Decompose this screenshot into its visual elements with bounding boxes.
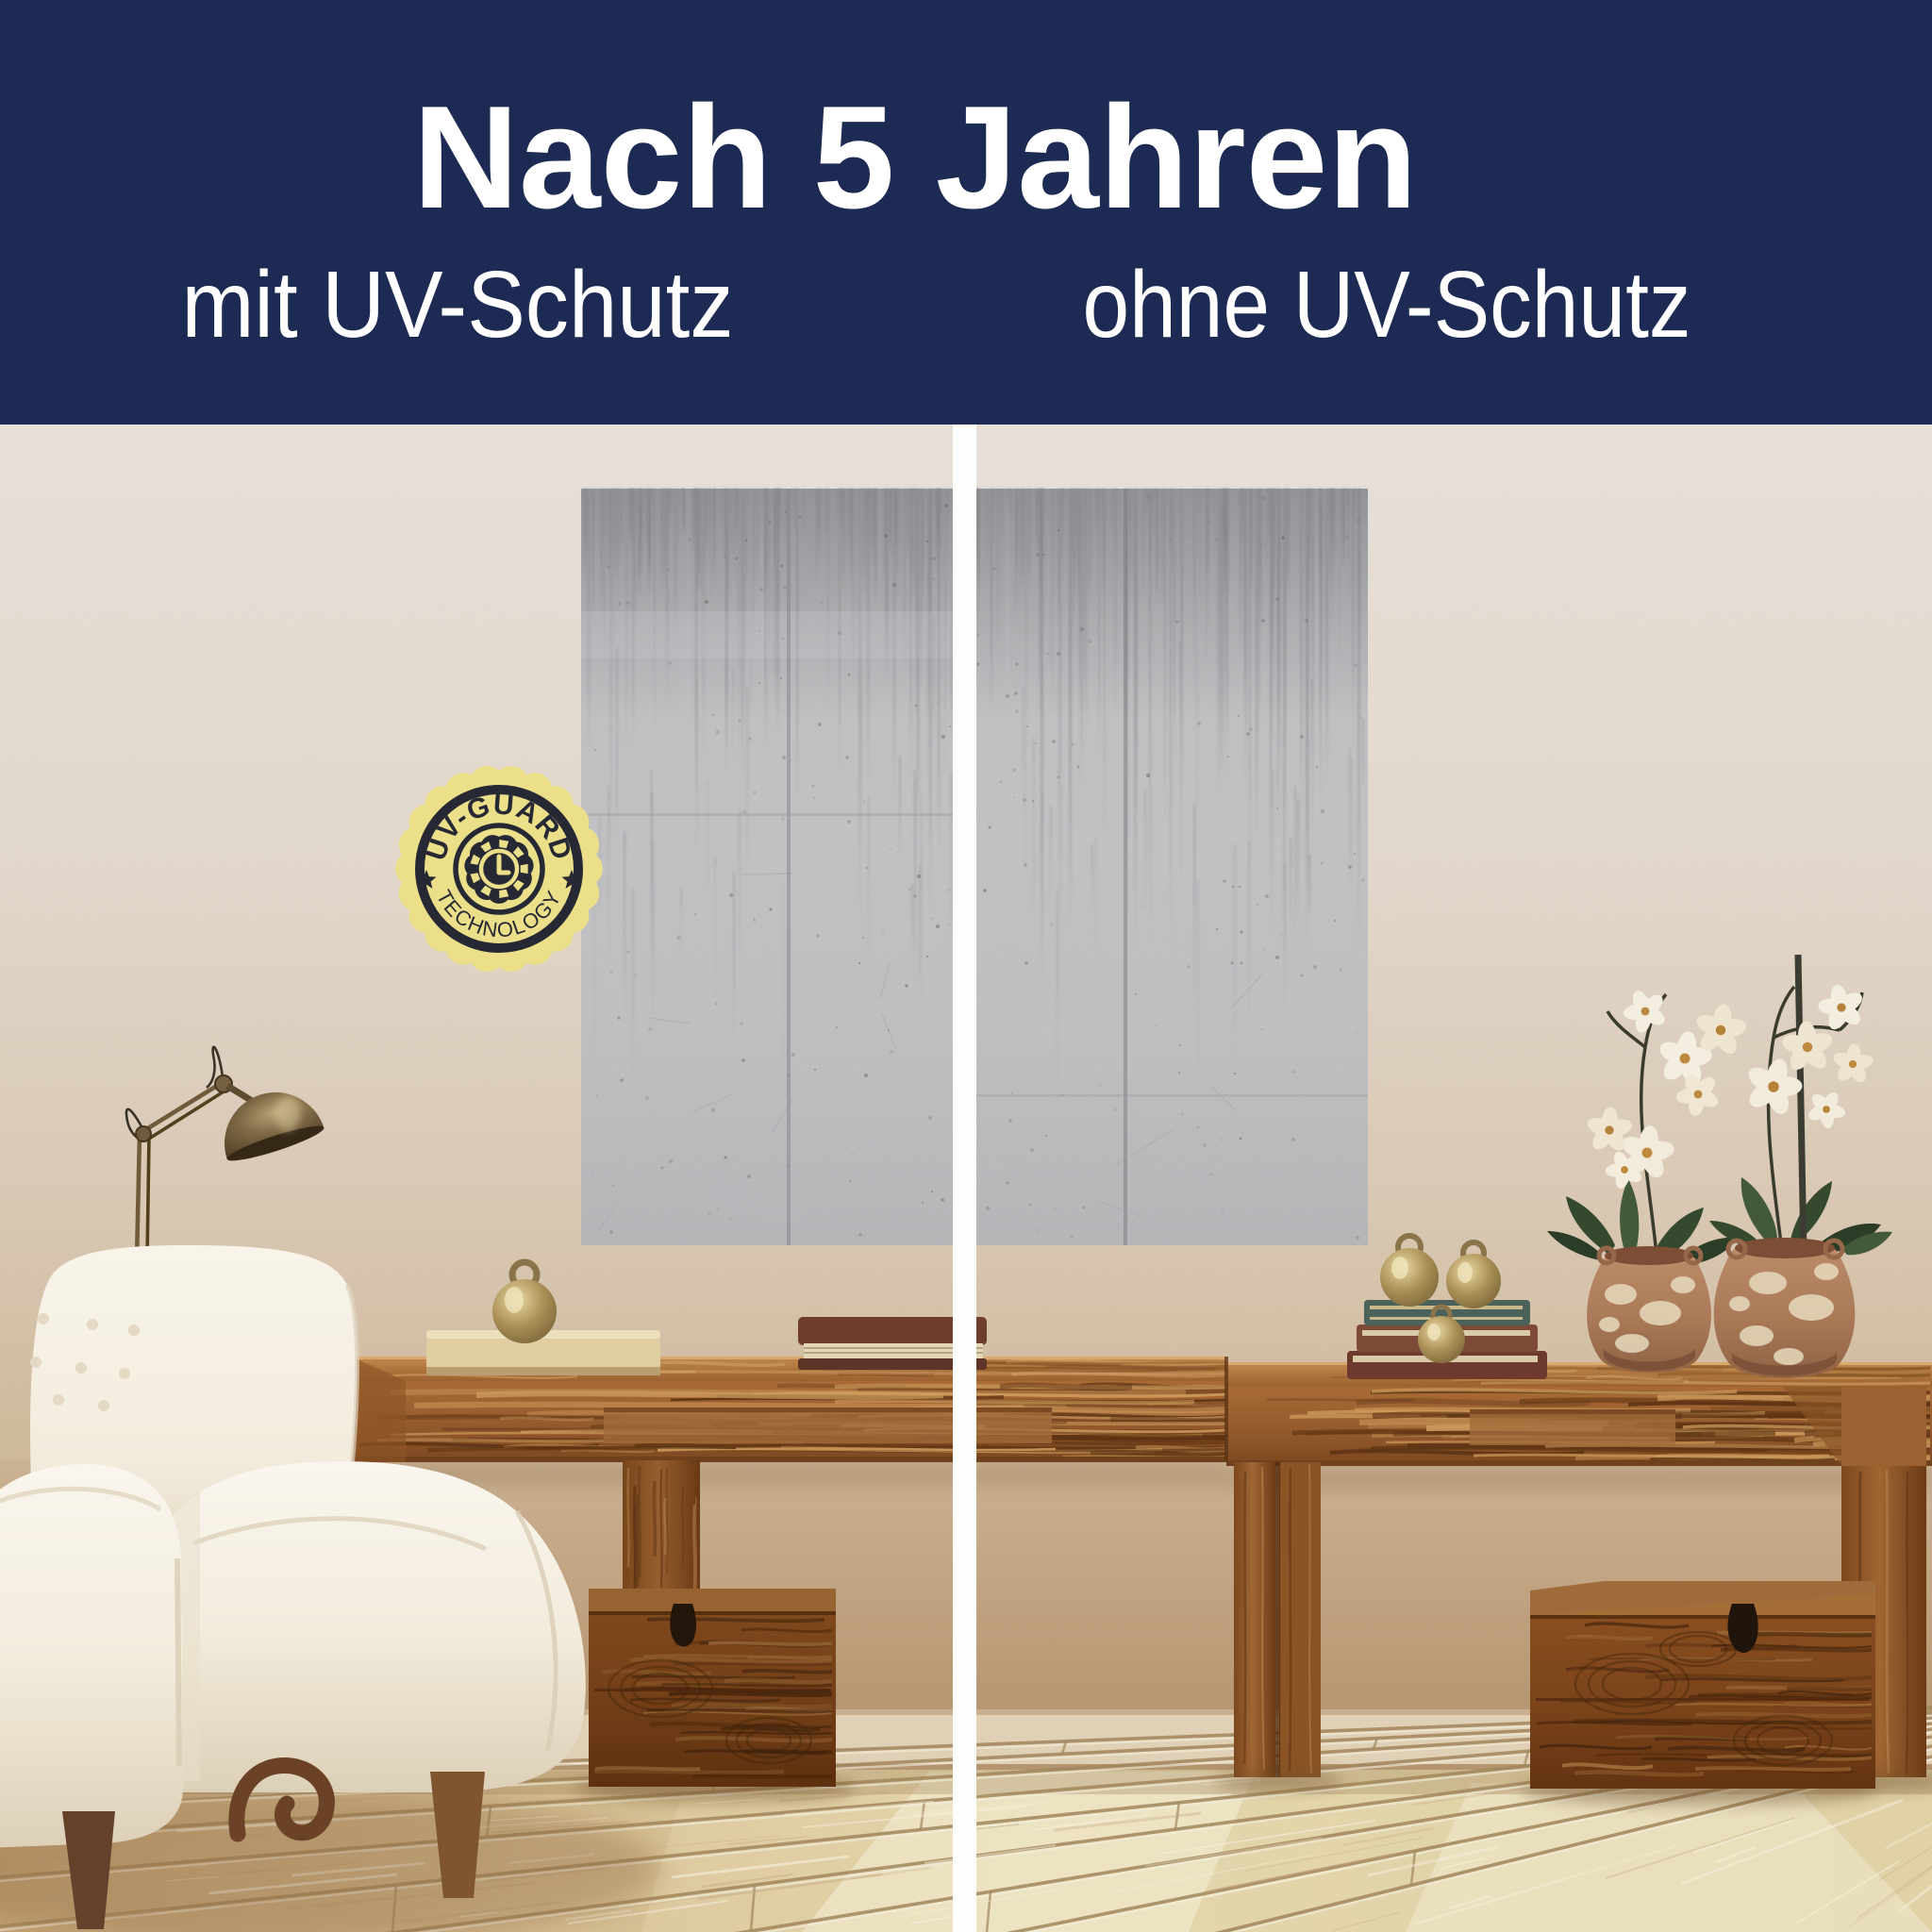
svg-text:ohne UV-Schutz: ohne UV-Schutz — [1083, 252, 1691, 358]
svg-text:mit UV-Schutz: mit UV-Schutz — [182, 252, 734, 358]
svg-text:Nach 5 Jahren: Nach 5 Jahren — [413, 75, 1418, 239]
